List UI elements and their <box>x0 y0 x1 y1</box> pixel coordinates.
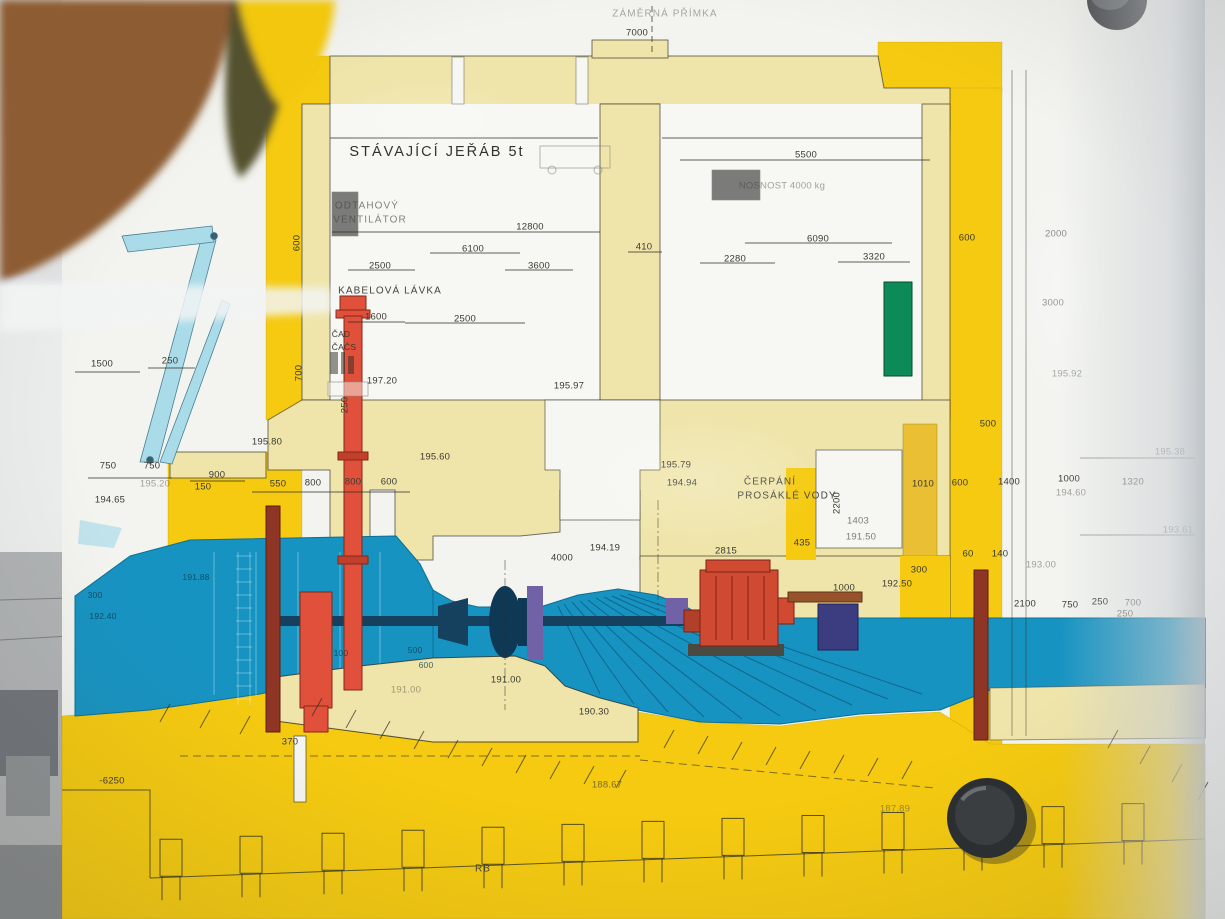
magnet-bottom <box>947 778 1036 864</box>
photo-of-diagram: ZÁMĚRNÁ PŘÍMKA7000STÁVAJÍCÍ JEŘÁB 5tODTA… <box>0 0 1225 919</box>
foreground-objects <box>0 0 1225 919</box>
blurry-foreground-object <box>0 0 335 332</box>
poster-edge-shade <box>1060 0 1205 919</box>
